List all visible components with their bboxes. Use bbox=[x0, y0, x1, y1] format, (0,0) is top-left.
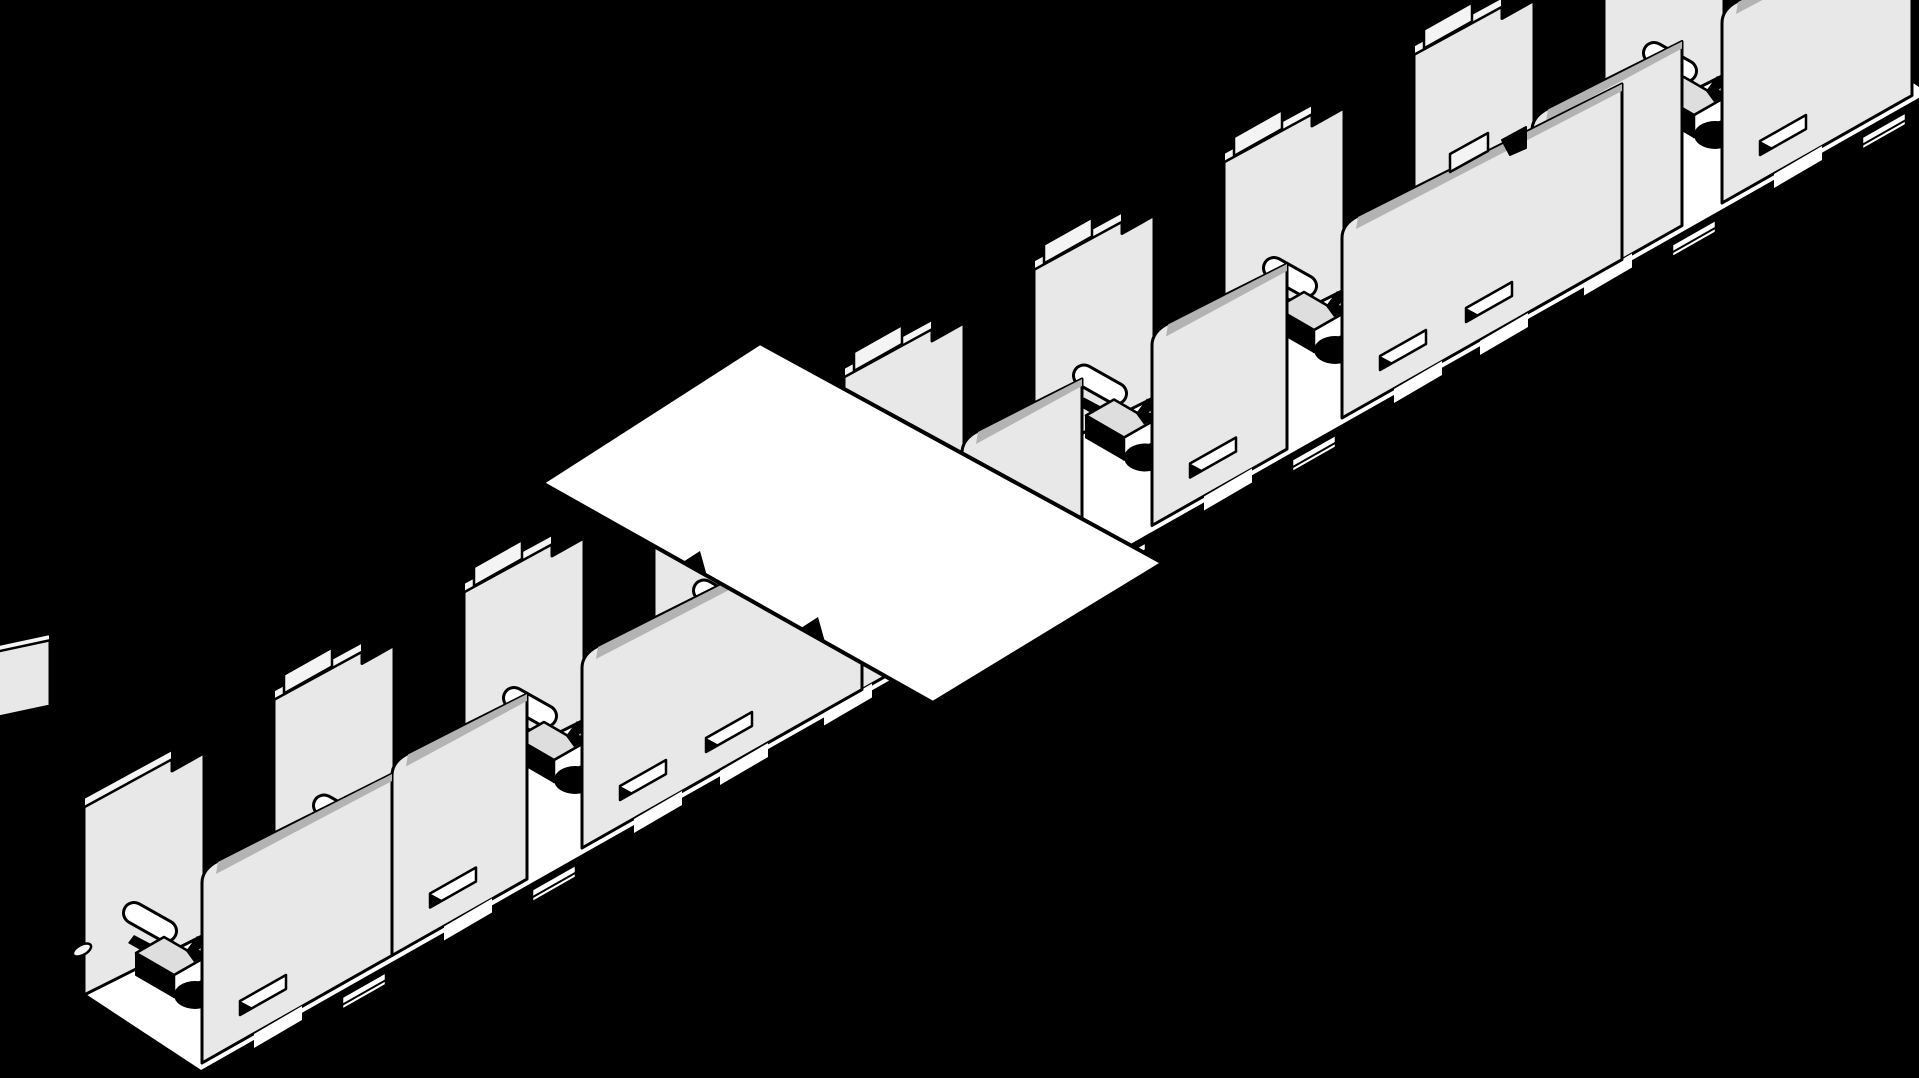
edge-panel-fragment bbox=[0, 634, 50, 718]
edge-panel-face bbox=[0, 640, 50, 718]
assembly-scene bbox=[0, 0, 1919, 1078]
isometric-assembly-illustration bbox=[0, 0, 1919, 1078]
